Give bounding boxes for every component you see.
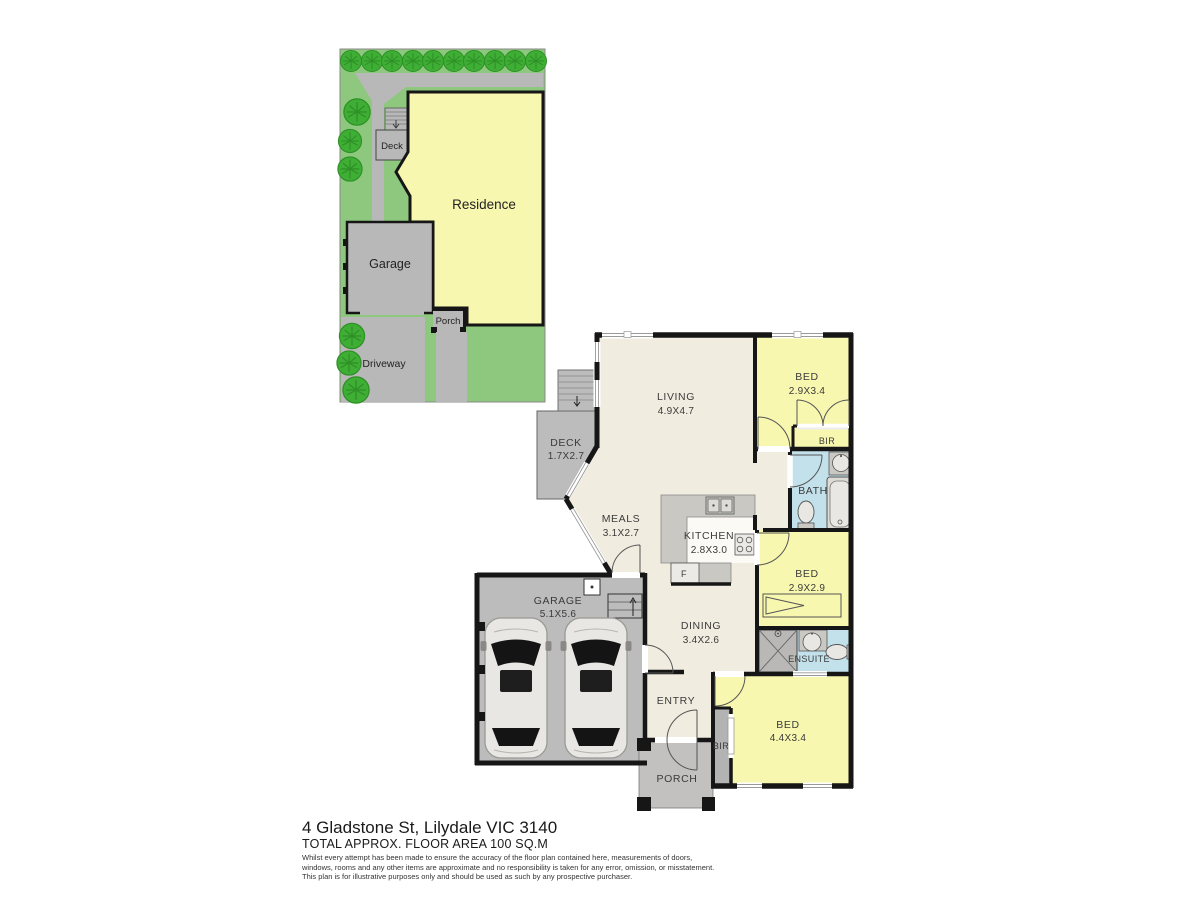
plan-canvas: Deck Residence Garage Porch Driveway [0, 0, 1200, 900]
dims-bed2: 2.9X2.9 [789, 583, 826, 594]
site-deck: Deck [376, 130, 408, 160]
site-deck-label: Deck [381, 141, 403, 152]
site-driveway-label: Driveway [362, 358, 406, 370]
label-bir2: BIR [713, 741, 729, 751]
bath-toilet [798, 501, 814, 523]
disclaimer-line: Whilst every attempt has been made to en… [302, 853, 714, 863]
property-address: 4 Gladstone St, Lilydale VIC 3140 [302, 818, 714, 837]
footer: 4 Gladstone St, Lilydale VIC 3140 TOTAL … [302, 818, 714, 882]
window-living-top [602, 332, 653, 338]
disclaimer-line: windows, rooms and any other items are a… [302, 863, 714, 873]
label-dining: DINING [681, 620, 721, 632]
window-bed1-top [772, 332, 823, 338]
dims-bed1: 2.9X3.4 [789, 386, 826, 397]
window-bed3-bottom-2 [803, 785, 832, 788]
site-porch-label: Porch [436, 316, 461, 327]
dims-dining: 3.4X2.6 [683, 635, 720, 646]
window-bed3-bottom-1 [737, 785, 762, 788]
label-bed2: BED [795, 568, 818, 580]
disclaimer-line: This plan is for illustrative purposes o… [302, 872, 714, 882]
label-bath: BATH [798, 485, 828, 497]
site-porch: Porch [431, 308, 466, 333]
car-right [561, 618, 632, 758]
dims-deck: 1.7X2.7 [548, 451, 585, 462]
dims-bed3: 4.4X3.4 [770, 733, 807, 744]
label-bed3: BED [776, 719, 799, 731]
dims-kitchen: 2.8X3.0 [691, 545, 728, 556]
label-garage: GARAGE [534, 595, 583, 607]
ensuite-basin [803, 633, 821, 651]
floorplan-page: Deck Residence Garage Porch Driveway [0, 0, 1200, 900]
label-bir1: BIR [819, 436, 835, 446]
site-garage: Garage [343, 222, 433, 313]
label-living: LIVING [657, 391, 695, 403]
kitchen-cooktop [735, 534, 754, 555]
dims-living: 4.9X4.7 [658, 406, 695, 417]
site-plan: Deck Residence Garage Porch Driveway [337, 49, 547, 403]
disclaimer: Whilst every attempt has been made to en… [302, 853, 714, 882]
garage-steps [608, 594, 642, 618]
car-left [481, 618, 552, 758]
site-garage-label: Garage [369, 257, 411, 271]
dims-meals: 3.1X2.7 [603, 528, 640, 539]
label-meals: MEALS [602, 513, 641, 525]
window-living-left [596, 342, 599, 407]
deck-stairs [558, 370, 597, 411]
label-kitchen: KITCHEN [684, 530, 734, 542]
label-deck: DECK [550, 437, 582, 449]
label-bed1: BED [795, 371, 818, 383]
label-entry: ENTRY [657, 695, 695, 707]
site-stairs [385, 108, 407, 130]
fridge-label: F [681, 569, 687, 579]
site-residence-label: Residence [452, 197, 516, 212]
floor-area-text: TOTAL APPROX. FLOOR AREA 100 SQ.M [302, 837, 714, 852]
label-ensuite: ENSUITE [788, 654, 830, 664]
floor-plan: F [475, 332, 853, 812]
dims-garage: 5.1X5.6 [540, 609, 577, 620]
window-ensuite-bottom [793, 673, 827, 676]
site-porch-path [436, 332, 467, 402]
label-porch: PORCH [657, 773, 698, 785]
